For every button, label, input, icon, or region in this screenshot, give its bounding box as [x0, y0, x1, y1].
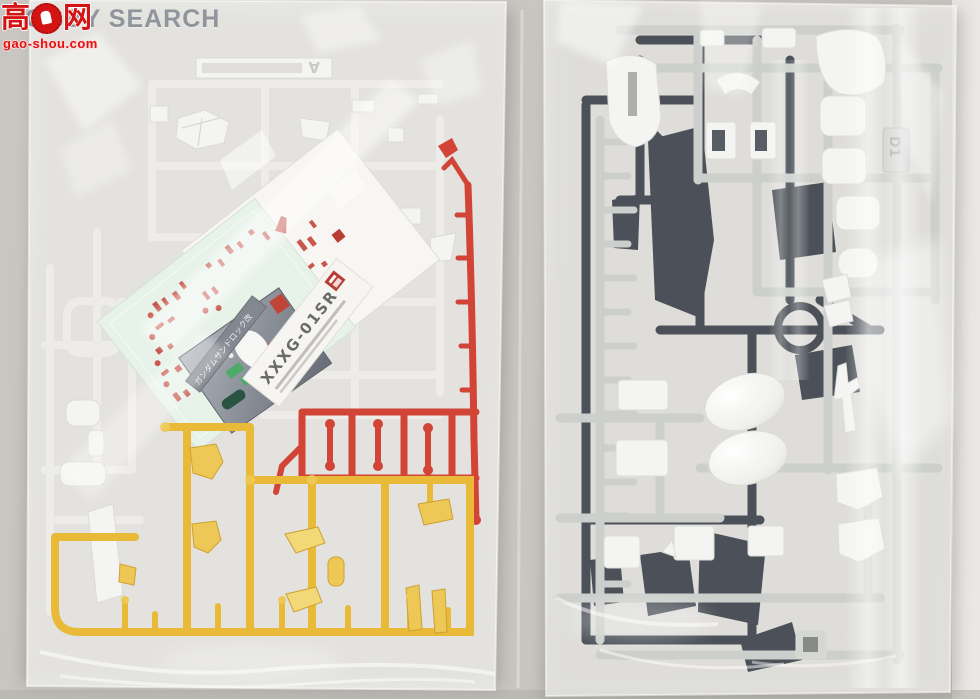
thumb-up-badge-icon: [31, 3, 62, 34]
right-bag: D1: [542, 0, 962, 699]
left-bag: A: [22, 0, 512, 690]
left-bag-highlights: [27, 0, 506, 690]
scanned-photo-model-kit-runners: A: [0, 0, 980, 699]
watermark: HOBBY SEARCH 高 网 gao-shou.com: [0, 0, 220, 60]
watermark-cn-right: 网: [63, 1, 92, 35]
watermark-logo: 高 网: [1, 1, 92, 35]
watermark-cn-left: 高: [1, 1, 30, 35]
right-bag-highlights: [544, 0, 956, 696]
watermark-url: gao-shou.com: [3, 36, 98, 51]
